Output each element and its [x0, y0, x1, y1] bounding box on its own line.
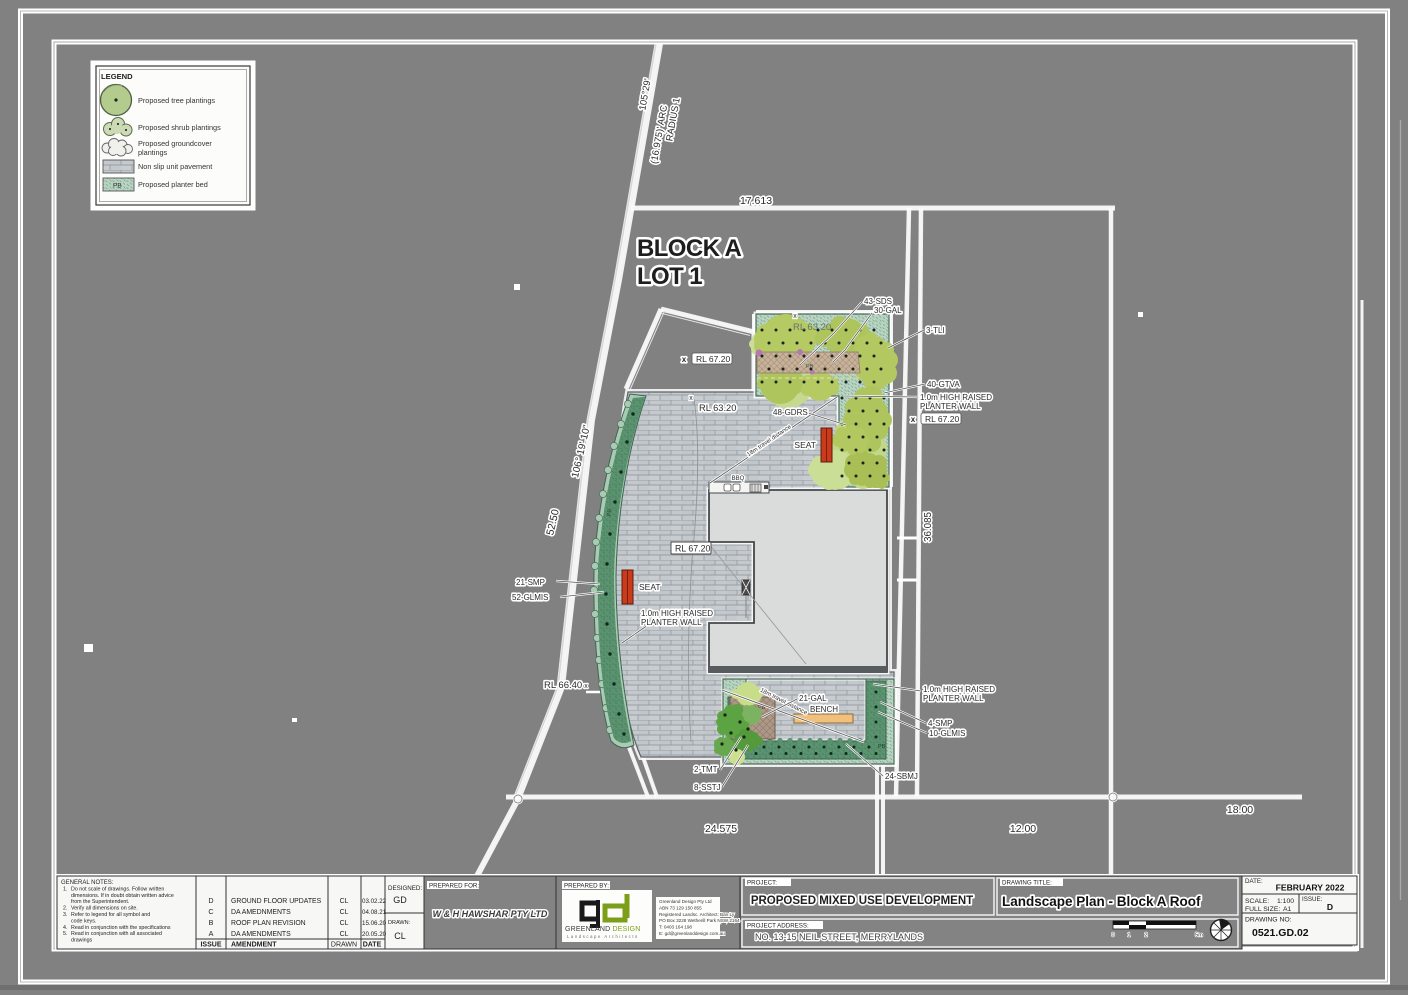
svg-text:CL: CL — [340, 920, 349, 927]
svg-text:LOT 1: LOT 1 — [637, 263, 702, 290]
svg-text:04.08.21: 04.08.21 — [362, 909, 387, 916]
svg-text:SEAT: SEAT — [639, 582, 661, 592]
svg-text:8-SSTJ: 8-SSTJ — [694, 783, 721, 792]
svg-text:03.02.22: 03.02.22 — [362, 898, 387, 905]
svg-text:1.0m HIGH RAISED: 1.0m HIGH RAISED — [920, 393, 992, 402]
svg-text:10-GLMIS: 10-GLMIS — [929, 729, 965, 738]
svg-text:PROJECT:: PROJECT: — [747, 880, 777, 887]
svg-text:Landscape Plan - Block A Roof: Landscape Plan - Block A Roof — [1002, 894, 1201, 909]
svg-text:FULL SIZE:: FULL SIZE: — [1245, 906, 1280, 913]
svg-text:17.613: 17.613 — [740, 195, 772, 207]
svg-text:RL 67.20: RL 67.20 — [696, 354, 730, 364]
svg-text:CL: CL — [394, 931, 406, 941]
svg-text:D: D — [1327, 902, 1333, 912]
svg-text:12.00: 12.00 — [1010, 823, 1036, 835]
svg-text:2.: 2. — [63, 906, 67, 912]
svg-text:plantings: plantings — [138, 148, 168, 157]
svg-text:30-GAL: 30-GAL — [874, 306, 902, 315]
svg-text:DA AMENDMENTS: DA AMENDMENTS — [231, 931, 291, 938]
svg-text:DRAWING TITLE:: DRAWING TITLE: — [1002, 880, 1052, 887]
svg-text:20.05.20: 20.05.20 — [362, 931, 387, 938]
svg-text:36.085: 36.085 — [923, 511, 934, 542]
svg-text:RL 66.40: RL 66.40 — [544, 680, 582, 691]
svg-text:21-SMP: 21-SMP — [516, 578, 545, 587]
svg-text:DRAWN: DRAWN — [331, 942, 357, 949]
svg-text:A1: A1 — [1283, 906, 1292, 913]
svg-text:PREPARED FOR:: PREPARED FOR: — [429, 883, 479, 890]
svg-text:0521.GD.02: 0521.GD.02 — [1252, 927, 1309, 939]
svg-text:18.00: 18.00 — [1227, 804, 1253, 816]
svg-text:Do not scale of drawings. Foll: Do not scale of drawings. Follow written — [71, 886, 164, 892]
svg-text:Non slip unit pavement: Non slip unit pavement — [138, 162, 212, 171]
svg-text:40-GTVA: 40-GTVA — [927, 380, 960, 389]
svg-text:1.: 1. — [63, 886, 67, 892]
svg-text:x: x — [793, 313, 797, 320]
svg-text:Proposed planter bed: Proposed planter bed — [138, 180, 208, 189]
svg-text:GROUND FLOOR UPDATES: GROUND FLOOR UPDATES — [231, 898, 322, 905]
svg-text:RL 67.20: RL 67.20 — [925, 414, 959, 424]
svg-text:dimensions. If in doubt obtain: dimensions. If in doubt obtain written a… — [71, 893, 174, 899]
svg-text:ROOF PLAN REVISION: ROOF PLAN REVISION — [231, 920, 306, 927]
svg-text:ABN 73 129 150 855: ABN 73 129 150 855 — [659, 905, 702, 910]
svg-text:from the Superintendent.: from the Superintendent. — [71, 899, 129, 905]
svg-text:x: x — [689, 395, 693, 402]
svg-text:CL: CL — [340, 909, 349, 916]
svg-text:RL 67.20: RL 67.20 — [675, 544, 710, 554]
svg-text:AMENDMENT: AMENDMENT — [231, 942, 277, 949]
svg-text:A: A — [209, 929, 214, 938]
svg-text:W & H HAWSHAR PTY LTD: W & H HAWSHAR PTY LTD — [433, 909, 548, 919]
svg-text:C: C — [208, 907, 213, 916]
svg-text:Proposed tree plantings: Proposed tree plantings — [138, 96, 215, 105]
svg-text:4-SMP: 4-SMP — [928, 719, 952, 728]
svg-text:drawings: drawings — [71, 938, 93, 944]
svg-text:PLANTER WALL: PLANTER WALL — [641, 618, 702, 627]
svg-text:RL 63.20: RL 63.20 — [793, 322, 831, 333]
svg-text:x: x — [584, 683, 588, 690]
svg-text:21-GAL: 21-GAL — [799, 694, 827, 703]
svg-text:1.0m HIGH RAISED: 1.0m HIGH RAISED — [923, 685, 995, 694]
svg-text:E: gd@greenlanddesign.com.au: E: gd@greenlanddesign.com.au — [659, 931, 725, 936]
svg-text:DRAWN:: DRAWN: — [388, 920, 411, 926]
svg-text:43-SDS: 43-SDS — [864, 297, 892, 306]
svg-text:52-GLMIS: 52-GLMIS — [512, 593, 548, 602]
svg-text:B: B — [209, 918, 214, 927]
svg-text:Verify all dimensions on site.: Verify all dimensions on site. — [71, 906, 138, 912]
svg-text:Refer to legend for all symbol: Refer to legend for all symbol and — [71, 912, 150, 918]
svg-text:3-TLI: 3-TLI — [926, 326, 945, 335]
svg-text:0: 0 — [1111, 933, 1114, 939]
svg-text:PROJECT ADDRESS:: PROJECT ADDRESS: — [747, 923, 809, 930]
svg-text:ISSUE: ISSUE — [200, 942, 221, 949]
svg-text:48-GDRS: 48-GDRS — [773, 408, 808, 417]
svg-text:DA AMEDNMENTS: DA AMEDNMENTS — [231, 909, 291, 916]
svg-text:DESIGNED:: DESIGNED: — [388, 885, 422, 892]
svg-text:1.0m HIGH RAISED: 1.0m HIGH RAISED — [641, 609, 713, 618]
svg-text:GENERAL NOTES:: GENERAL NOTES: — [61, 880, 114, 886]
svg-text:D: D — [208, 896, 213, 905]
svg-text:PB: PB — [806, 364, 814, 370]
svg-text:ISSUE:: ISSUE: — [1302, 896, 1323, 903]
svg-text:DRAWING NO:: DRAWING NO: — [1245, 917, 1292, 924]
svg-text:3.: 3. — [63, 912, 67, 918]
svg-text:Read in conjunction with the s: Read in conjunction with the specificati… — [71, 925, 171, 931]
svg-text:1: 1 — [1127, 933, 1130, 939]
svg-text:x: x — [911, 415, 916, 424]
svg-text:Read in conjunction with all a: Read in conjunction with all associated — [71, 931, 162, 937]
svg-text:PLANTER WALL: PLANTER WALL — [920, 402, 981, 411]
svg-text:1:100: 1:100 — [1277, 898, 1294, 905]
svg-text:CL: CL — [340, 931, 349, 938]
svg-text:PROPOSED MIXED USE DEVELOPMENT: PROPOSED MIXED USE DEVELOPMENT — [751, 895, 973, 907]
svg-text:24-SBMJ: 24-SBMJ — [885, 772, 918, 781]
svg-text:DATE:: DATE: — [1245, 878, 1263, 885]
svg-text:BBQ: BBQ — [732, 476, 745, 482]
svg-text:FEBRUARY 2022: FEBRUARY 2022 — [1276, 883, 1345, 893]
svg-text:LEGEND: LEGEND — [101, 72, 133, 81]
svg-text:NO. 13-15 NEIL STREET, MERRYLA: NO. 13-15 NEIL STREET, MERRYLANDS — [755, 932, 923, 942]
svg-text:Registered Landsc. Architect:: Registered Landsc. Architect: Ban Ly — [659, 912, 735, 917]
svg-text:PLANTER WALL: PLANTER WALL — [923, 694, 984, 703]
svg-text:code keys.: code keys. — [71, 918, 96, 924]
svg-text:RL 63.20: RL 63.20 — [699, 403, 736, 413]
svg-text:GREENLAND DESIGN: GREENLAND DESIGN — [565, 926, 641, 933]
svg-text:BLOCK A: BLOCK A — [637, 235, 742, 262]
svg-text:5.: 5. — [63, 931, 67, 937]
svg-text:T: 0403 164 198: T: 0403 164 198 — [659, 925, 692, 930]
svg-text:DATE: DATE — [363, 942, 382, 949]
svg-text:24.575: 24.575 — [705, 823, 737, 835]
svg-text:SCALE:: SCALE: — [1245, 898, 1269, 905]
svg-text:PB: PB — [113, 183, 122, 190]
svg-text:5m: 5m — [1195, 933, 1203, 939]
svg-text:PB: PB — [878, 744, 886, 750]
svg-text:Proposed shrub plantings: Proposed shrub plantings — [138, 123, 221, 132]
svg-text:GD: GD — [393, 895, 407, 905]
svg-text:PO Box 3228 Wetherill Park NSW: PO Box 3228 Wetherill Park NSW 2164 — [659, 918, 740, 923]
svg-text:Greenland Design Pty Ltd: Greenland Design Pty Ltd — [659, 899, 712, 904]
svg-text:Proposed groundcover: Proposed groundcover — [138, 139, 212, 148]
svg-text:Landscape Architects: Landscape Architects — [567, 934, 639, 939]
svg-text:4.: 4. — [63, 925, 67, 931]
svg-text:2-TMT: 2-TMT — [694, 765, 718, 774]
svg-text:BENCH: BENCH — [810, 705, 838, 714]
svg-text:x: x — [682, 355, 687, 364]
svg-text:15.06.20: 15.06.20 — [362, 920, 387, 927]
svg-text:SEAT: SEAT — [794, 440, 816, 450]
svg-text:CL: CL — [340, 898, 349, 905]
svg-text:2: 2 — [1144, 933, 1147, 939]
svg-text:PREPARED BY:: PREPARED BY: — [564, 883, 609, 890]
